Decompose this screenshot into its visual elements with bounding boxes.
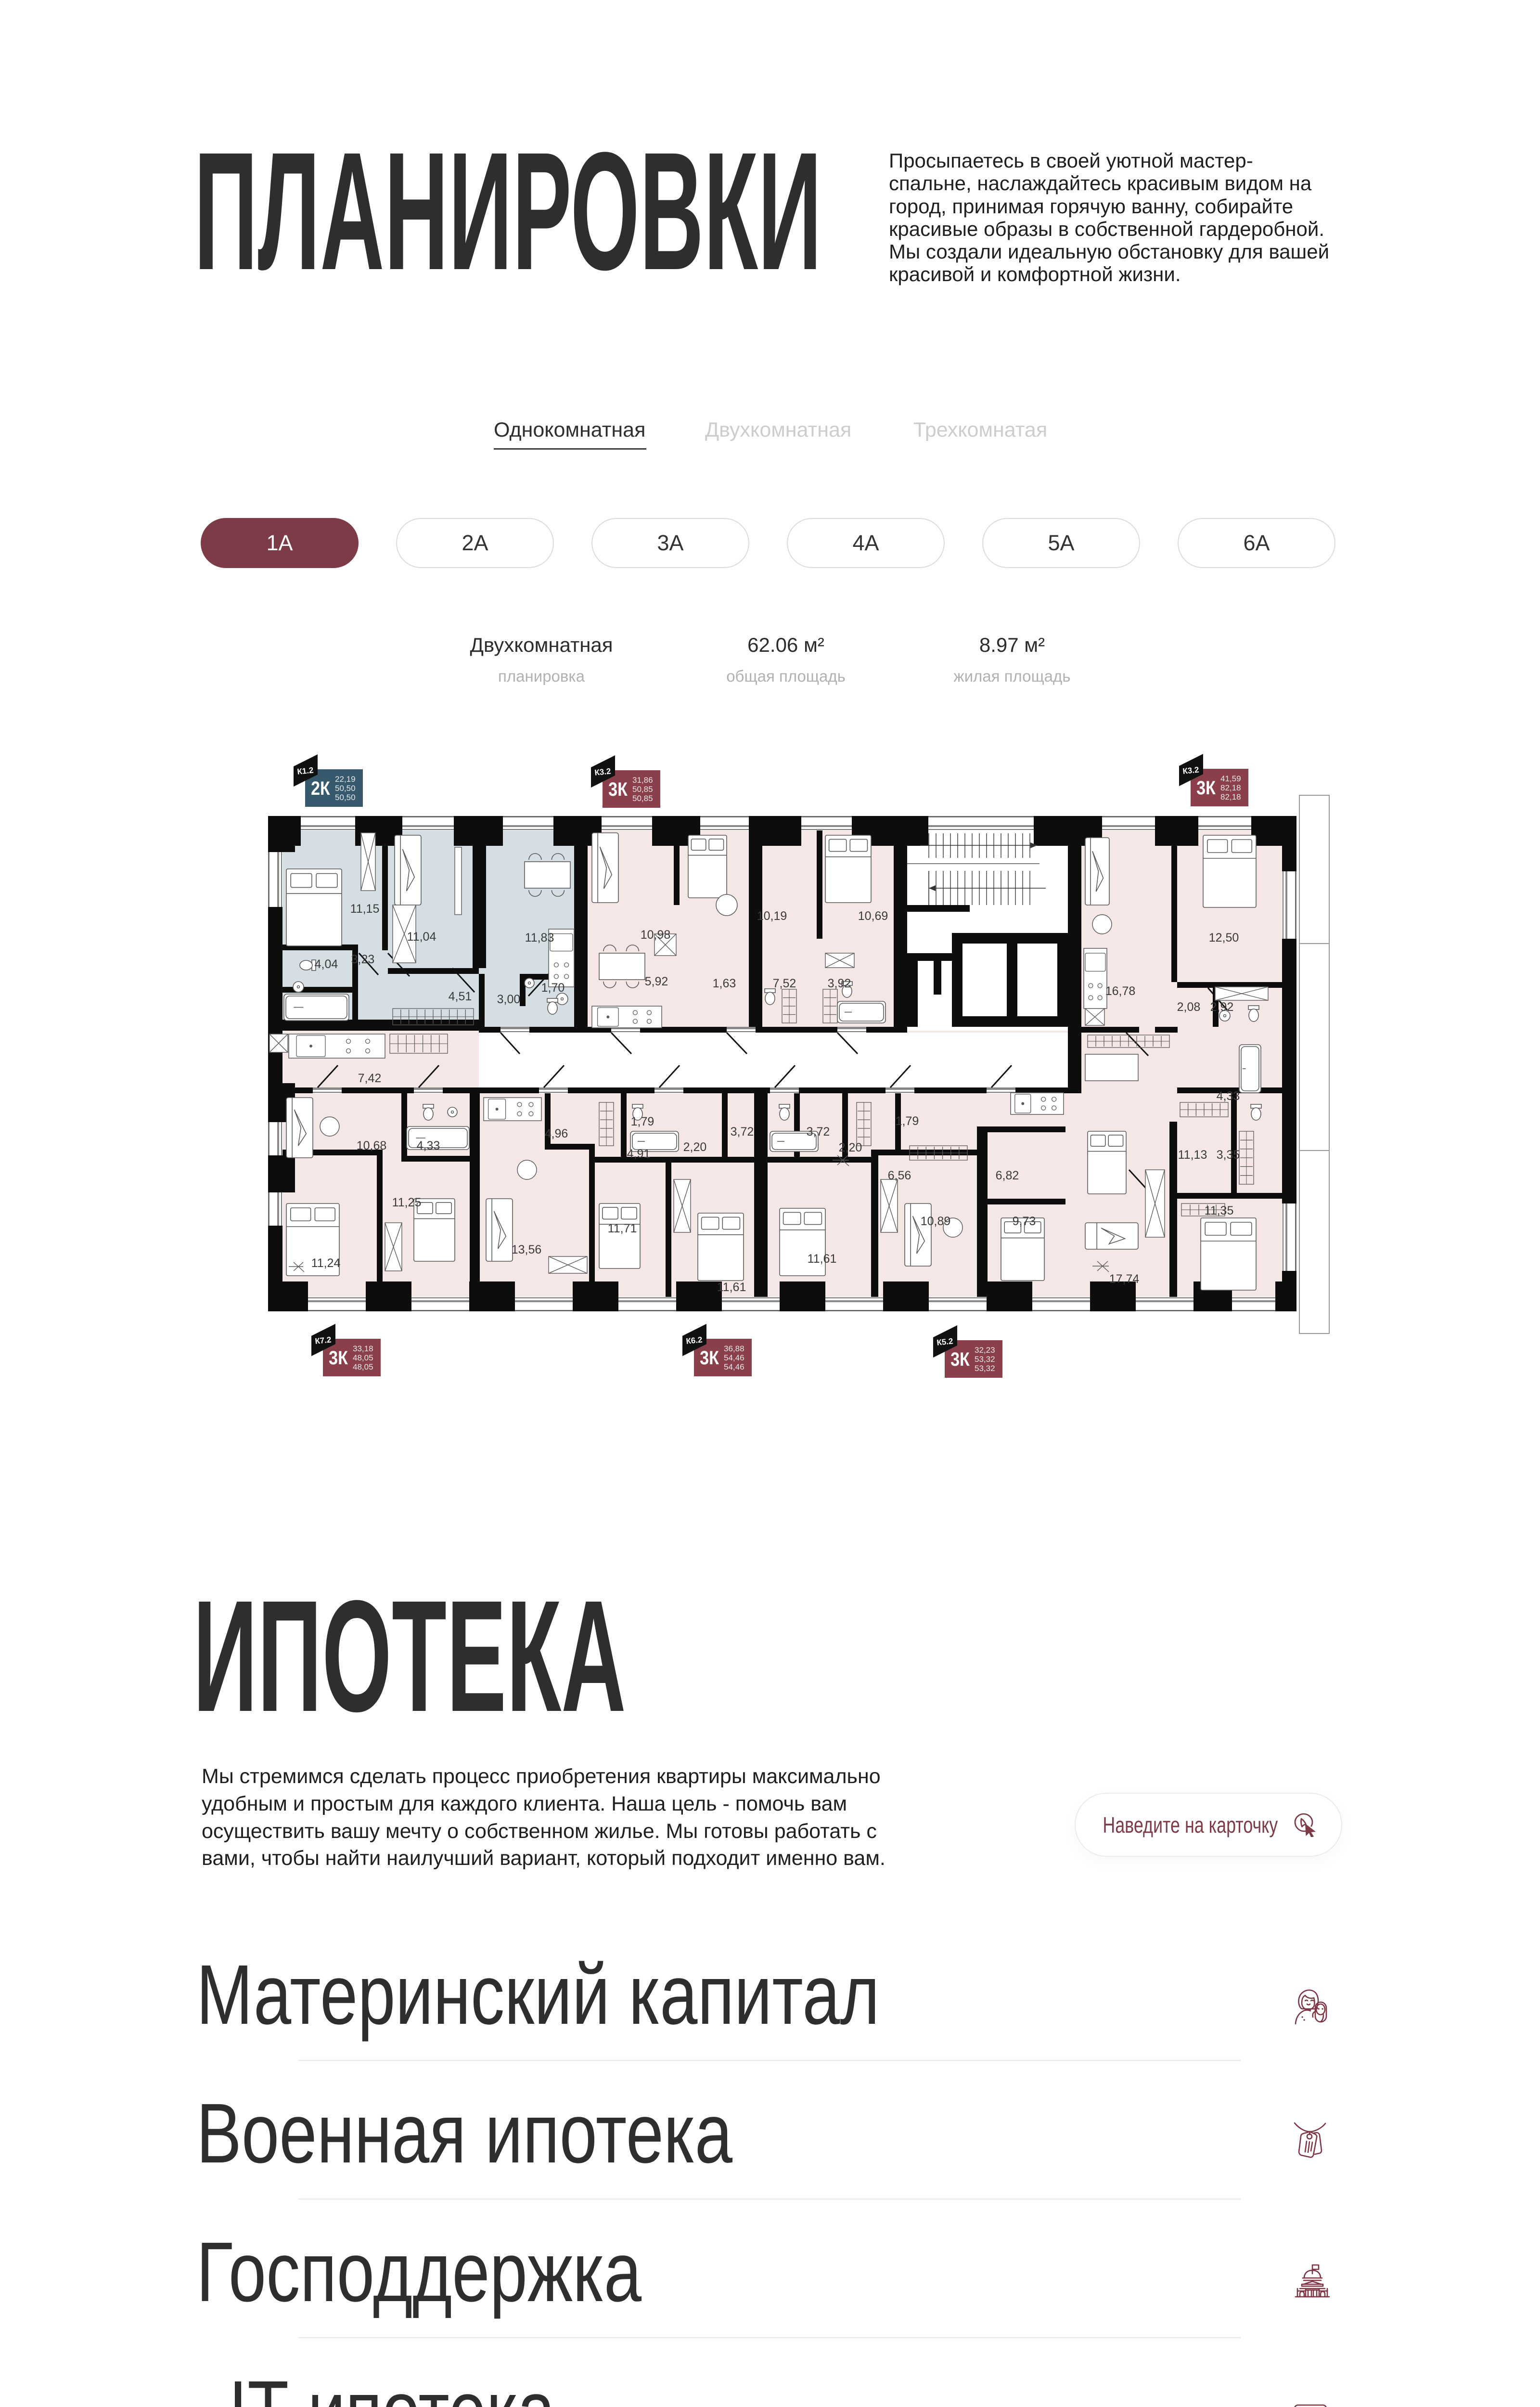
svg-text:16,78: 16,78 (1105, 984, 1136, 998)
svg-text:К1.2: К1.2 (297, 765, 314, 776)
svg-text:К6.2: К6.2 (686, 1335, 703, 1346)
svg-text:К7.2: К7.2 (315, 1335, 332, 1346)
svg-text:33,1848,0548,05: 33,1848,0548,05 (353, 1344, 373, 1372)
svg-text:К3.2: К3.2 (594, 766, 612, 777)
svg-text:12,50: 12,50 (1209, 931, 1239, 945)
svg-text:3,72: 3,72 (731, 1125, 754, 1139)
svg-text:3К: 3К (1196, 776, 1216, 798)
svg-text:6,82: 6,82 (996, 1169, 1019, 1182)
svg-text:36,8854,4654,46: 36,8854,4654,46 (724, 1344, 744, 1372)
svg-text:11,25: 11,25 (392, 1196, 422, 1209)
svg-text:1,79: 1,79 (896, 1114, 919, 1128)
svg-text:3,35: 3,35 (1217, 1148, 1240, 1162)
svg-text:К5.2: К5.2 (937, 1336, 954, 1347)
svg-text:11,35: 11,35 (1205, 1204, 1234, 1217)
svg-text:5,92: 5,92 (645, 975, 668, 988)
svg-text:10,68: 10,68 (357, 1139, 387, 1152)
svg-text:3,23: 3,23 (351, 953, 375, 966)
svg-text:4,33: 4,33 (417, 1139, 440, 1152)
svg-text:2,08: 2,08 (1177, 1000, 1201, 1014)
svg-text:4,91: 4,91 (627, 1147, 651, 1161)
svg-text:11,61: 11,61 (717, 1281, 746, 1294)
svg-text:10,98: 10,98 (641, 928, 671, 942)
svg-text:17,74: 17,74 (1109, 1272, 1140, 1286)
svg-text:22,1950,5050,50: 22,1950,5050,50 (335, 775, 356, 802)
svg-text:9,73: 9,73 (1013, 1215, 1036, 1228)
svg-text:4,04: 4,04 (315, 958, 338, 971)
svg-text:2,20: 2,20 (839, 1141, 862, 1154)
svg-text:41,5982,1882,18: 41,5982,1882,18 (1220, 774, 1241, 802)
svg-text:1,70: 1,70 (541, 981, 565, 995)
svg-text:3,00: 3,00 (497, 993, 521, 1006)
svg-text:4,96: 4,96 (545, 1127, 568, 1140)
svg-text:11,15: 11,15 (350, 902, 380, 916)
svg-text:10,19: 10,19 (757, 909, 787, 923)
svg-text:6,56: 6,56 (888, 1169, 911, 1182)
svg-text:2,20: 2,20 (683, 1140, 707, 1154)
svg-text:1,79: 1,79 (631, 1115, 654, 1128)
svg-text:3К: 3К (700, 1346, 719, 1368)
svg-text:3К: 3К (950, 1348, 970, 1370)
svg-text:4,33: 4,33 (1217, 1089, 1240, 1103)
svg-text:3,72: 3,72 (807, 1125, 830, 1139)
svg-text:11,71: 11,71 (608, 1222, 637, 1235)
svg-text:2К: 2К (311, 777, 330, 799)
svg-text:10,89: 10,89 (921, 1215, 951, 1228)
svg-text:11,24: 11,24 (311, 1256, 341, 1270)
svg-text:11,83: 11,83 (525, 931, 554, 945)
svg-text:11,13: 11,13 (1178, 1148, 1207, 1162)
svg-text:4,51: 4,51 (449, 990, 472, 1003)
svg-text:13,56: 13,56 (512, 1243, 542, 1256)
svg-text:31,8650,8550,85: 31,8650,8550,85 (632, 776, 653, 803)
svg-text:10,69: 10,69 (858, 909, 888, 923)
svg-text:1,63: 1,63 (713, 977, 736, 990)
svg-text:3К: 3К (329, 1346, 348, 1368)
svg-text:11,04: 11,04 (407, 930, 436, 944)
svg-text:2,92: 2,92 (1210, 1000, 1234, 1014)
svg-text:11,61: 11,61 (808, 1252, 837, 1266)
svg-text:3,92: 3,92 (828, 977, 851, 990)
svg-text:32,2353,3253,32: 32,2353,3253,32 (975, 1346, 995, 1373)
svg-text:7,42: 7,42 (358, 1072, 382, 1085)
svg-text:К3.2: К3.2 (1182, 765, 1200, 776)
svg-text:7,52: 7,52 (773, 977, 796, 990)
svg-text:3К: 3К (608, 778, 628, 800)
